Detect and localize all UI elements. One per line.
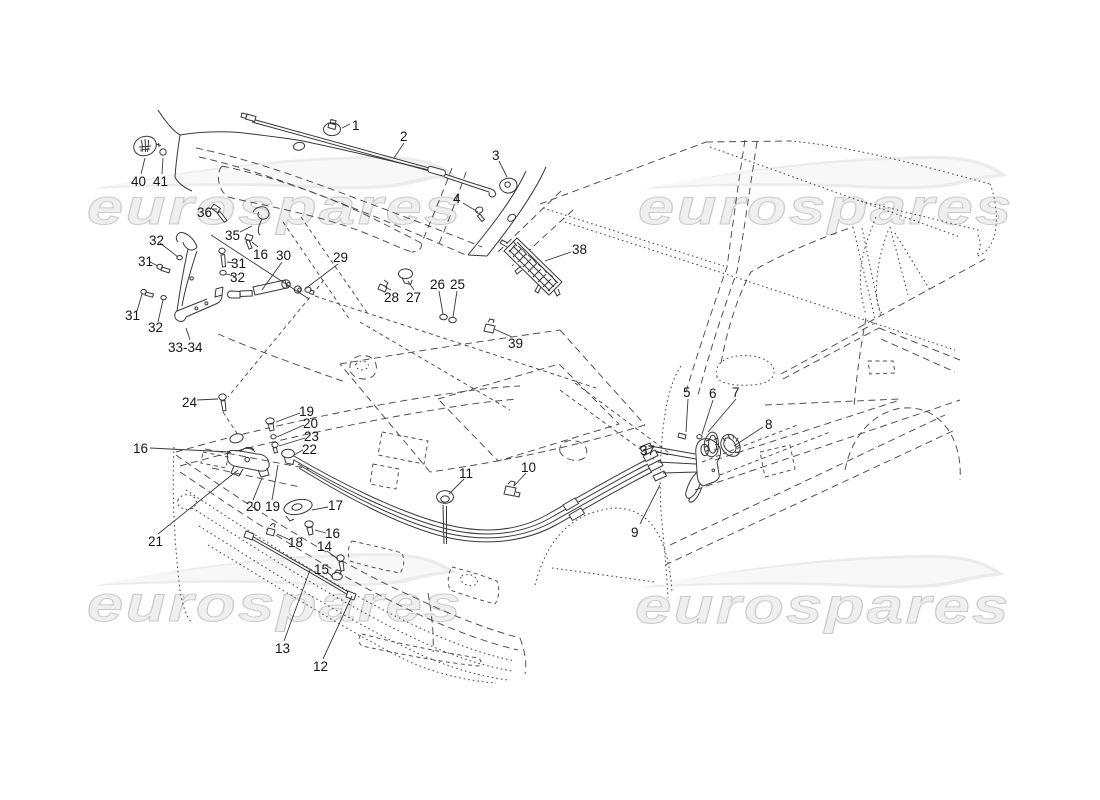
svg-text:16: 16: [325, 526, 340, 541]
svg-text:36: 36: [197, 205, 212, 220]
svg-text:7: 7: [732, 385, 740, 400]
svg-text:16: 16: [253, 247, 268, 262]
svg-text:1: 1: [352, 118, 360, 133]
svg-text:31: 31: [231, 256, 246, 271]
svg-text:30: 30: [276, 248, 291, 263]
svg-text:32: 32: [148, 320, 163, 335]
svg-text:38: 38: [572, 242, 587, 257]
svg-text:35: 35: [225, 228, 240, 243]
svg-text:13: 13: [275, 641, 290, 656]
svg-text:26: 26: [430, 277, 445, 292]
svg-text:37: 37: [640, 443, 655, 458]
svg-text:8: 8: [765, 417, 773, 432]
svg-text:33-34: 33-34: [168, 340, 203, 355]
svg-text:12: 12: [313, 659, 328, 674]
svg-text:29: 29: [333, 250, 348, 265]
svg-text:16: 16: [133, 441, 148, 456]
svg-text:19: 19: [265, 499, 280, 514]
svg-text:31: 31: [138, 254, 153, 269]
svg-text:27: 27: [406, 290, 421, 305]
svg-text:2: 2: [400, 129, 408, 144]
svg-text:28: 28: [384, 290, 399, 305]
svg-text:24: 24: [182, 395, 198, 410]
svg-text:20: 20: [246, 499, 261, 514]
svg-text:6: 6: [709, 386, 717, 401]
svg-text:18: 18: [288, 535, 303, 550]
svg-text:3: 3: [492, 148, 500, 163]
svg-text:25: 25: [450, 277, 465, 292]
svg-text:21: 21: [148, 534, 163, 549]
svg-text:9: 9: [631, 525, 639, 540]
svg-text:31: 31: [125, 308, 140, 323]
svg-text:22: 22: [302, 442, 317, 457]
svg-text:5: 5: [683, 385, 691, 400]
svg-text:32: 32: [230, 270, 245, 285]
svg-text:17: 17: [328, 498, 343, 513]
svg-text:14: 14: [317, 539, 333, 554]
svg-text:15: 15: [314, 562, 329, 577]
svg-text:10: 10: [521, 460, 536, 475]
svg-text:39: 39: [508, 336, 523, 351]
svg-text:32: 32: [149, 233, 164, 248]
svg-text:41: 41: [153, 174, 168, 189]
svg-text:11: 11: [459, 466, 473, 481]
svg-text:4: 4: [453, 191, 461, 206]
svg-text:40: 40: [131, 174, 146, 189]
